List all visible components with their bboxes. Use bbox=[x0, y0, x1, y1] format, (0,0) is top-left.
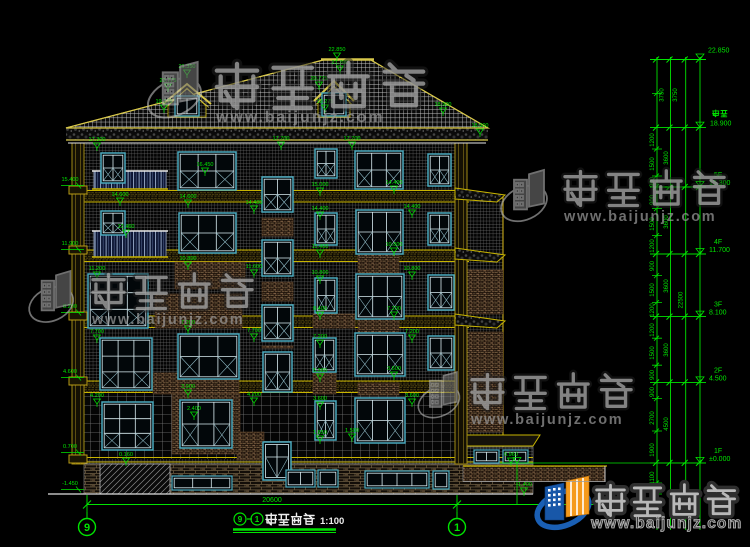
svg-text:14.400: 14.400 bbox=[403, 204, 420, 210]
svg-text:0.160: 0.160 bbox=[119, 452, 133, 458]
svg-text:1F: 1F bbox=[714, 448, 722, 455]
svg-text:0.960: 0.960 bbox=[504, 452, 518, 458]
svg-text:1200: 1200 bbox=[650, 239, 656, 253]
svg-text:22.850: 22.850 bbox=[328, 47, 345, 53]
svg-text:11.700: 11.700 bbox=[709, 247, 730, 254]
svg-text:1500: 1500 bbox=[650, 283, 656, 297]
svg-text:3600: 3600 bbox=[664, 151, 670, 165]
svg-text:22500: 22500 bbox=[679, 291, 685, 308]
svg-text:12.460: 12.460 bbox=[117, 224, 134, 230]
svg-text:www.baijunjz.com: www.baijunjz.com bbox=[590, 515, 742, 532]
svg-text:www.baijunjz.com: www.baijunjz.com bbox=[470, 412, 623, 428]
svg-text:3.900: 3.900 bbox=[181, 384, 195, 390]
svg-text:3F: 3F bbox=[714, 302, 722, 309]
svg-text:7.200: 7.200 bbox=[313, 334, 327, 340]
svg-text:4.500: 4.500 bbox=[709, 375, 727, 382]
svg-text:3600: 3600 bbox=[664, 343, 670, 357]
svg-text:14.400: 14.400 bbox=[245, 200, 262, 206]
svg-text:3.600: 3.600 bbox=[405, 393, 419, 399]
svg-text:8.400: 8.400 bbox=[313, 306, 327, 312]
svg-text:14.400: 14.400 bbox=[385, 180, 402, 186]
svg-text:14.400: 14.400 bbox=[311, 206, 328, 212]
svg-text:4F: 4F bbox=[714, 239, 722, 246]
svg-text:15.000: 15.000 bbox=[311, 182, 328, 188]
svg-text:1.650: 1.650 bbox=[313, 430, 327, 436]
svg-text:14.600: 14.600 bbox=[179, 194, 196, 200]
svg-text:18.900: 18.900 bbox=[434, 102, 451, 108]
svg-text:18.900: 18.900 bbox=[710, 121, 732, 128]
svg-text:1500: 1500 bbox=[650, 346, 656, 360]
svg-text:3600: 3600 bbox=[664, 279, 670, 293]
svg-text:4.600: 4.600 bbox=[63, 369, 77, 375]
svg-text:18.900: 18.900 bbox=[471, 123, 488, 129]
svg-text:1200: 1200 bbox=[650, 323, 656, 337]
svg-text:7.200: 7.200 bbox=[387, 306, 401, 312]
svg-text:15.400: 15.400 bbox=[61, 177, 78, 183]
svg-text:±0.000: ±0.000 bbox=[709, 456, 730, 463]
svg-text:4.200: 4.200 bbox=[247, 392, 261, 398]
svg-text:17.700: 17.700 bbox=[272, 136, 289, 142]
svg-text:22.850: 22.850 bbox=[708, 48, 730, 55]
svg-text:10.800: 10.800 bbox=[403, 266, 420, 272]
svg-text:9: 9 bbox=[238, 515, 243, 524]
svg-text:www.baijunjz.com: www.baijunjz.com bbox=[91, 312, 244, 328]
svg-text:-1.450: -1.450 bbox=[62, 481, 78, 487]
svg-text:3.600: 3.600 bbox=[387, 366, 401, 372]
svg-text:www.baijunjz.com: www.baijunjz.com bbox=[215, 109, 385, 126]
svg-text:2F: 2F bbox=[714, 367, 722, 374]
svg-text:5.380: 5.380 bbox=[313, 368, 327, 374]
svg-text:2.400: 2.400 bbox=[187, 406, 201, 412]
svg-text:17.300: 17.300 bbox=[88, 137, 105, 143]
svg-text:www.baijunjz.com: www.baijunjz.com bbox=[563, 209, 716, 225]
svg-text:10.800: 10.800 bbox=[385, 242, 402, 248]
svg-text:17.700: 17.700 bbox=[343, 136, 360, 142]
svg-text:1900: 1900 bbox=[650, 443, 656, 457]
svg-text:900: 900 bbox=[650, 260, 656, 271]
svg-text:10.800: 10.800 bbox=[311, 270, 328, 276]
svg-text:1200: 1200 bbox=[650, 133, 656, 147]
svg-text:1:100: 1:100 bbox=[320, 516, 344, 527]
svg-text:1: 1 bbox=[454, 522, 460, 534]
svg-text:4.200: 4.200 bbox=[90, 393, 104, 399]
svg-text:0.700: 0.700 bbox=[63, 444, 77, 450]
svg-text:7.200: 7.200 bbox=[405, 329, 419, 335]
svg-text:11.600: 11.600 bbox=[246, 264, 263, 270]
svg-text:11.900: 11.900 bbox=[62, 241, 79, 247]
svg-text:7.700: 7.700 bbox=[90, 329, 104, 335]
svg-text:16.450: 16.450 bbox=[196, 162, 213, 168]
svg-text:3750: 3750 bbox=[660, 88, 666, 102]
svg-text:-1.400: -1.400 bbox=[516, 482, 532, 488]
svg-text:8.100: 8.100 bbox=[709, 310, 727, 317]
svg-text:1.500: 1.500 bbox=[345, 428, 359, 434]
svg-text:2700: 2700 bbox=[650, 411, 656, 425]
svg-text:3.600: 3.600 bbox=[313, 396, 327, 402]
svg-text:10.800: 10.800 bbox=[179, 256, 196, 262]
svg-text:1100: 1100 bbox=[650, 471, 656, 485]
svg-text:1200: 1200 bbox=[650, 303, 656, 317]
svg-text:900: 900 bbox=[650, 369, 656, 380]
svg-text:7.700: 7.700 bbox=[247, 328, 261, 334]
svg-text:3750: 3750 bbox=[673, 88, 679, 102]
svg-text:20600: 20600 bbox=[262, 497, 282, 504]
svg-text:11.400: 11.400 bbox=[312, 244, 329, 250]
svg-text:1500: 1500 bbox=[650, 157, 656, 171]
svg-text:1: 1 bbox=[255, 515, 260, 524]
svg-text:11.200: 11.200 bbox=[89, 266, 106, 272]
svg-text:4500: 4500 bbox=[664, 417, 670, 431]
svg-text:14.600: 14.600 bbox=[111, 192, 128, 198]
svg-text:9: 9 bbox=[84, 522, 90, 534]
svg-text:900: 900 bbox=[650, 386, 656, 397]
